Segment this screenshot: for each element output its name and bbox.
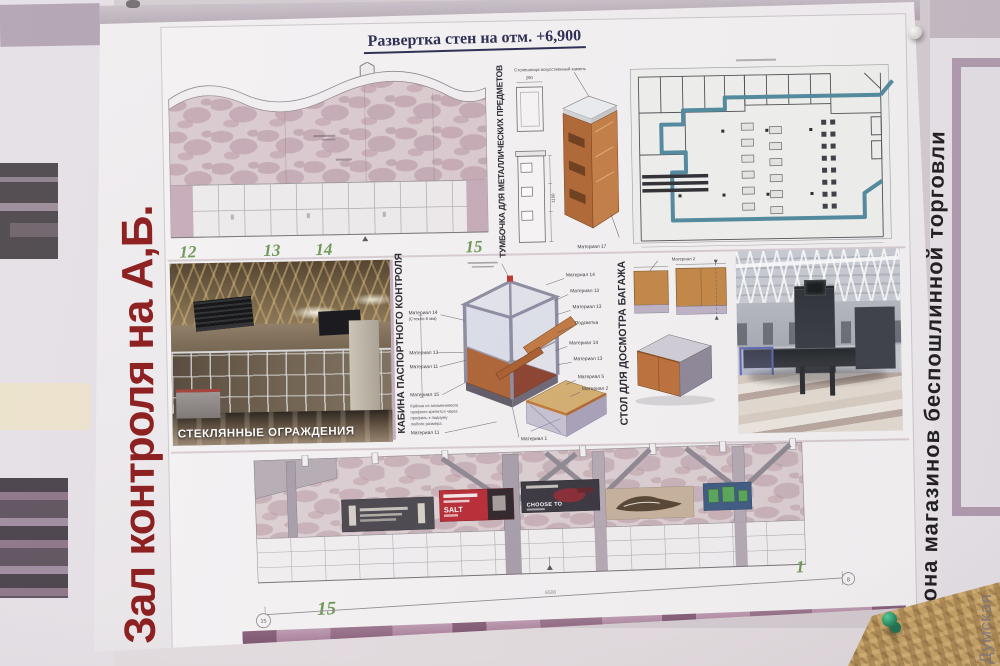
- metal-cabinet-drawing: Столешница искусственный камень 290 1190: [510, 61, 626, 261]
- photo-glass-partitions: СТЕКЛЯННЫЕ ОГРАЖДЕНИЯ: [170, 260, 393, 446]
- cabinet-dim: 1190: [550, 193, 555, 203]
- photo-of-drawing-board: Зал контроля на А,Б. Развертка стен на о…: [0, 0, 1000, 666]
- axis-label: 15: [465, 237, 483, 256]
- cabinet-dim: 290: [526, 75, 534, 80]
- baggage-table-drawing: Материал 2: [628, 253, 735, 437]
- banner-red-text: SALT: [444, 505, 464, 515]
- axis-label-left: 15: [317, 598, 337, 620]
- sheet-title: Развертка стен на отм. +6,900: [363, 27, 585, 54]
- left-poster-cream-band: [0, 383, 90, 430]
- photo2-legs: [830, 366, 836, 396]
- pushpin-white-icon: [908, 26, 922, 39]
- axis-label-right: 1: [796, 557, 805, 576]
- cabin-callout: Материал 1: [521, 436, 548, 442]
- cabin-callout: Материал 13: [572, 304, 601, 311]
- photo-flight-display: [193, 296, 254, 332]
- watermark: Думская: [976, 594, 996, 664]
- wall-elevation-top: 12 13 14 15: [164, 60, 492, 262]
- photo2-monitor: [804, 280, 826, 296]
- photo-xray-hall: [736, 248, 903, 433]
- cabin-callout: Подсветка: [575, 320, 599, 326]
- cabin-callout: Материал 5: [578, 374, 605, 380]
- board-mark: [126, 0, 140, 8]
- cabin-callout: Материал 11: [410, 364, 439, 371]
- cabin-callout: Материал 13: [570, 288, 599, 295]
- left-poster-top-band: [0, 3, 100, 47]
- left-poster-plan-fragment: [0, 163, 58, 259]
- right-poster-frame: [952, 58, 1000, 516]
- ad-banner-dark-1: [341, 497, 434, 532]
- cabin-callout: Материал 14: [566, 272, 595, 279]
- cabinet-note: Столешница искусственный камень: [514, 66, 587, 72]
- banner-dark-text: CHOOSE TO: [527, 501, 563, 508]
- svg-text:любого размера: любого размера: [411, 421, 443, 427]
- main-poster: Зал контроля на А,Б. Развертка стен на о…: [0, 0, 1000, 666]
- photo2-legs: [800, 366, 806, 394]
- ad-banner-beige: [605, 486, 694, 520]
- metal-cabinet-label: ТУМБОЧКА ДЛЯ МЕТАЛЛИЧЕСКИХ ПРЕДМЕТОВ: [494, 65, 508, 258]
- left-poster-striped-panel: [0, 478, 68, 598]
- cabin-note: Кабина из алюминиевого профиля крепится …: [410, 402, 459, 426]
- svg-text:профиль к подиуму: профиль к подиуму: [410, 415, 448, 421]
- ad-banner-dark-2: CHOOSE TO: [521, 479, 600, 513]
- grid-marker-left: 15: [260, 619, 266, 625]
- right-poster-top-band: [930, 0, 1000, 38]
- ad-banner-red: SALT: [439, 488, 514, 522]
- cabin-callout: Материал 2: [582, 386, 609, 392]
- cabin-callout: Материал 13: [409, 350, 438, 357]
- wall-elevation-bottom: SALT CHOOSE TO: [246, 436, 864, 631]
- axis-label: 12: [179, 242, 197, 261]
- cabin-callout: Материал 14: [569, 340, 598, 347]
- grid-marker-right: 8: [847, 577, 850, 583]
- cabin-callout: (Стекло 6 мм): [409, 316, 437, 322]
- photo-pillar: [349, 320, 381, 415]
- sheet-title-text: Развертка стен на отм. +6,900: [363, 27, 585, 54]
- passport-cabin-drawing: Материал 14 (Стекло 6 мм) Материал 13 Ма…: [406, 254, 615, 444]
- hall-side-title: Зал контроля на А,Б.: [113, 205, 166, 644]
- photo-desk: [176, 389, 221, 419]
- svg-text:Кабина из алюминиевого: Кабина из алюминиевого: [410, 402, 459, 408]
- axis-label: 14: [315, 240, 332, 259]
- table-callout: Материал 2: [672, 256, 696, 261]
- cabin-callout: Материал 15: [410, 392, 439, 399]
- cabin-callout: Материал 13: [573, 356, 602, 363]
- svg-text:профиля крепится через: профиля крепится через: [410, 409, 457, 415]
- pushpin-green-icon: [882, 612, 897, 627]
- cabin-callout: Материал 11: [411, 430, 440, 437]
- axis-label: 13: [263, 241, 281, 260]
- photo2-right-machine: [855, 306, 896, 369]
- inner-sheet: Развертка стен на отм. +6,900: [160, 13, 917, 653]
- ad-banner-blue: [703, 482, 752, 511]
- dim-label: 6500: [545, 590, 557, 596]
- cabinet-material-label: Материал 17: [577, 244, 606, 251]
- floor-plan: [624, 50, 898, 253]
